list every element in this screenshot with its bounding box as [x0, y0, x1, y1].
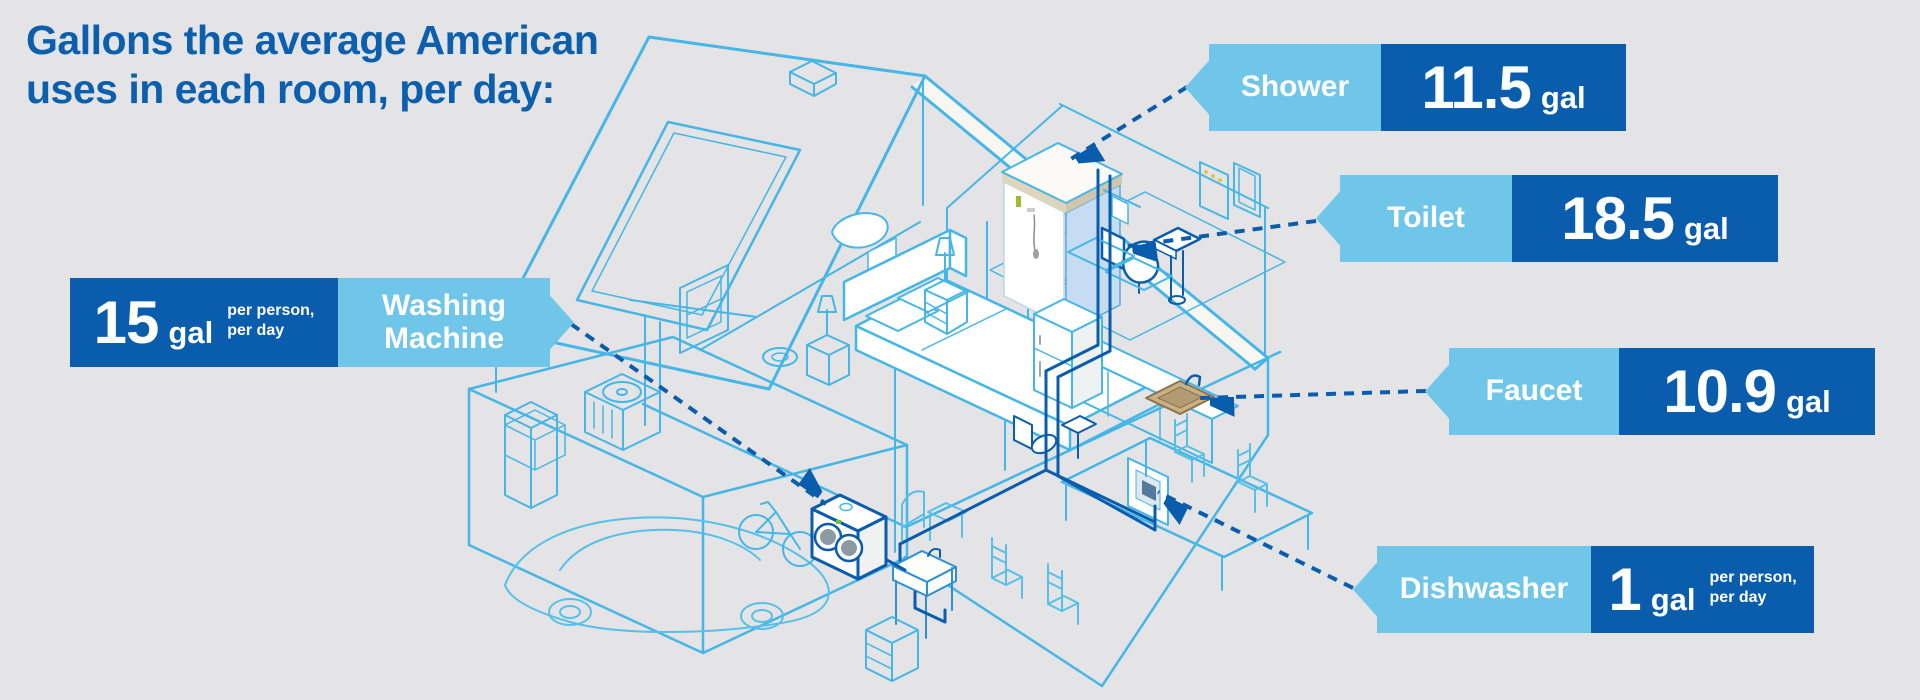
callout-label: Washing Machine: [338, 278, 550, 367]
leader-arrow-icon-faucet: [1200, 391, 1426, 398]
callout-label: Dishwasher: [1377, 546, 1591, 633]
callout-value: 11.5 gal: [1381, 44, 1626, 131]
callout-washing-machine: 15 gal per person, per day Washing Machi…: [70, 278, 574, 367]
callout-pointer-icon: [1353, 563, 1377, 617]
value-note: per person, per day: [227, 301, 314, 340]
callout-value: 10.9 gal: [1619, 348, 1875, 435]
leader-arrow-icon-toilet: [1122, 221, 1316, 247]
callout-value: 18.5 gal: [1512, 175, 1778, 262]
value-unit: gal: [1541, 82, 1586, 113]
value-unit: gal: [168, 317, 213, 348]
value-number: 18.5: [1561, 189, 1674, 249]
callout-label: Faucet: [1449, 348, 1619, 435]
value-unit: gal: [1786, 386, 1831, 417]
callout-shower: Shower 11.5 gal: [1185, 44, 1626, 131]
leader-arrow-icon-washing-machine: [571, 324, 826, 504]
callout-label: Shower: [1209, 44, 1381, 131]
title-line-2: uses in each room, per day:: [26, 65, 598, 114]
callout-value: 1 gal per person, per day: [1591, 546, 1814, 633]
value-unit: gal: [1651, 584, 1696, 615]
callout-pointer-icon: [1316, 192, 1340, 246]
callout-value: 15 gal per person, per day: [70, 278, 338, 367]
value-unit: gal: [1684, 213, 1729, 244]
page-title: Gallons the average American uses in eac…: [26, 16, 598, 114]
callout-faucet: Faucet 10.9 gal: [1425, 348, 1875, 435]
leader-arrow-icon-dishwasher: [1158, 492, 1353, 588]
callout-pointer-icon: [550, 296, 574, 350]
callout-pointer-icon: [1425, 365, 1449, 419]
value-number: 15: [94, 293, 159, 353]
callout-dishwasher: Dishwasher 1 gal per person, per day: [1353, 546, 1814, 633]
callout-label: Toilet: [1340, 175, 1512, 262]
infographic-canvas: Gallons the average American uses in eac…: [0, 0, 1920, 700]
value-note: per person, per day: [1710, 568, 1797, 607]
value-number: 10.9: [1663, 362, 1776, 422]
value-number: 1: [1608, 560, 1640, 620]
title-line-1: Gallons the average American: [26, 16, 598, 65]
leader-arrow-icon-shower: [1066, 87, 1187, 162]
callout-toilet: Toilet 18.5 gal: [1316, 175, 1778, 262]
callout-pointer-icon: [1185, 61, 1209, 115]
value-number: 11.5: [1421, 58, 1530, 118]
